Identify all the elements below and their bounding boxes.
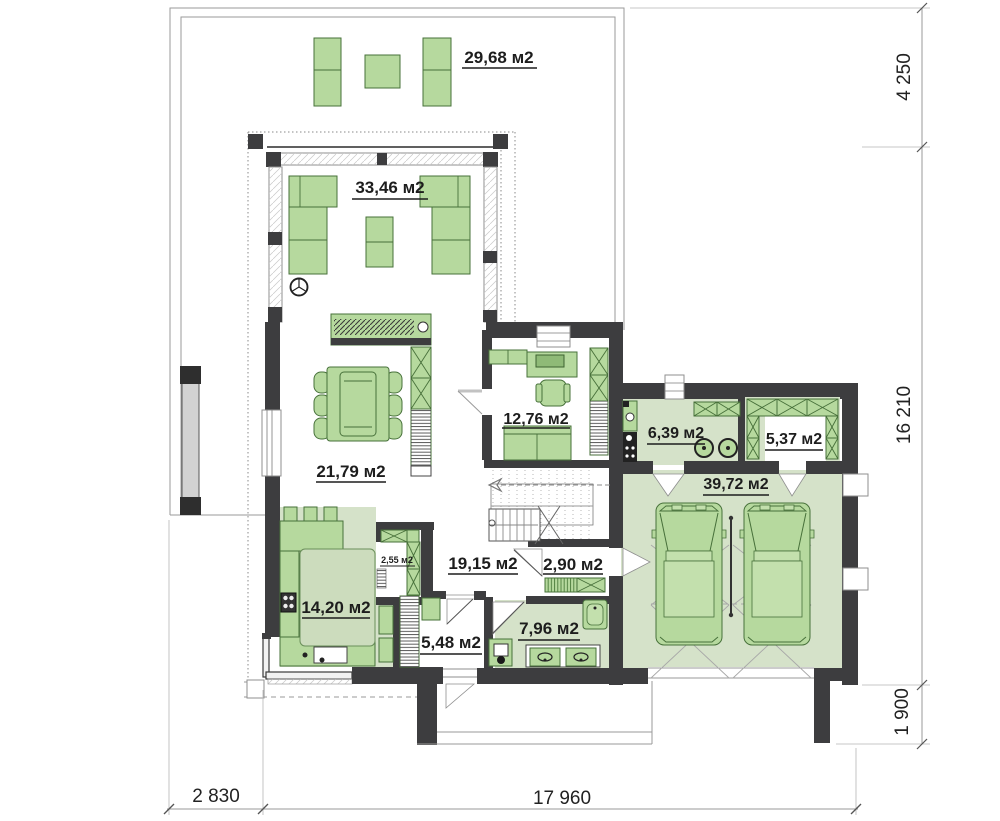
svg-text:19,15 м2: 19,15 м2 <box>448 554 517 573</box>
svg-text:39,72 м2: 39,72 м2 <box>703 476 768 493</box>
svg-text:14,20 м2: 14,20 м2 <box>301 598 370 617</box>
svg-text:2,90 м2: 2,90 м2 <box>543 555 603 574</box>
svg-text:1 900: 1 900 <box>892 688 913 736</box>
svg-text:2 830: 2 830 <box>192 786 240 807</box>
svg-text:29,68 м2: 29,68 м2 <box>464 48 533 67</box>
svg-text:5,37 м2: 5,37 м2 <box>766 431 822 448</box>
svg-text:16 210: 16 210 <box>894 386 915 444</box>
svg-text:21,79 м2: 21,79 м2 <box>316 462 385 481</box>
svg-text:7,96 м2: 7,96 м2 <box>519 619 579 638</box>
svg-text:17 960: 17 960 <box>533 788 591 809</box>
svg-text:5,48 м2: 5,48 м2 <box>421 633 481 652</box>
svg-text:6,39 м2: 6,39 м2 <box>648 425 704 442</box>
svg-text:2,55 м2: 2,55 м2 <box>381 555 413 565</box>
svg-text:4 250: 4 250 <box>894 53 915 101</box>
svg-text:12,76 м2: 12,76 м2 <box>503 411 568 428</box>
svg-text:33,46 м2: 33,46 м2 <box>355 178 424 197</box>
